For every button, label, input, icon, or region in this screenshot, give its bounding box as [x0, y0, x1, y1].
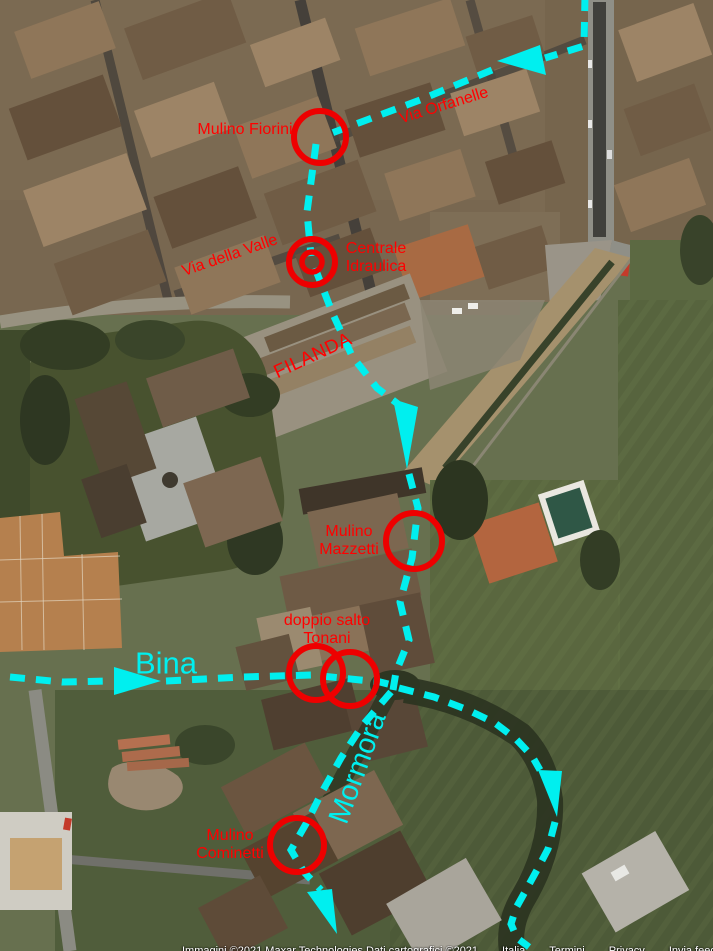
attribution-credit: Immagini ©2021 Maxar Technologies Dati c…	[182, 945, 478, 951]
map-attribution: Immagini ©2021 Maxar Technologies Dati c…	[0, 945, 713, 951]
bina-route-west	[10, 677, 112, 682]
attribution-link-feedback[interactable]: Invia feedback	[669, 945, 713, 951]
satellite-map[interactable]: Mulino Fiorini Via Orfanelle Via della V…	[0, 0, 713, 951]
attribution-link-privacy[interactable]: Privacy	[609, 945, 645, 951]
flow-arrow-mid	[393, 399, 418, 469]
attribution-link-italia[interactable]: Italia	[502, 945, 525, 951]
map-canvas	[0, 0, 713, 951]
attribution-link-termini[interactable]: Termini	[549, 945, 584, 951]
